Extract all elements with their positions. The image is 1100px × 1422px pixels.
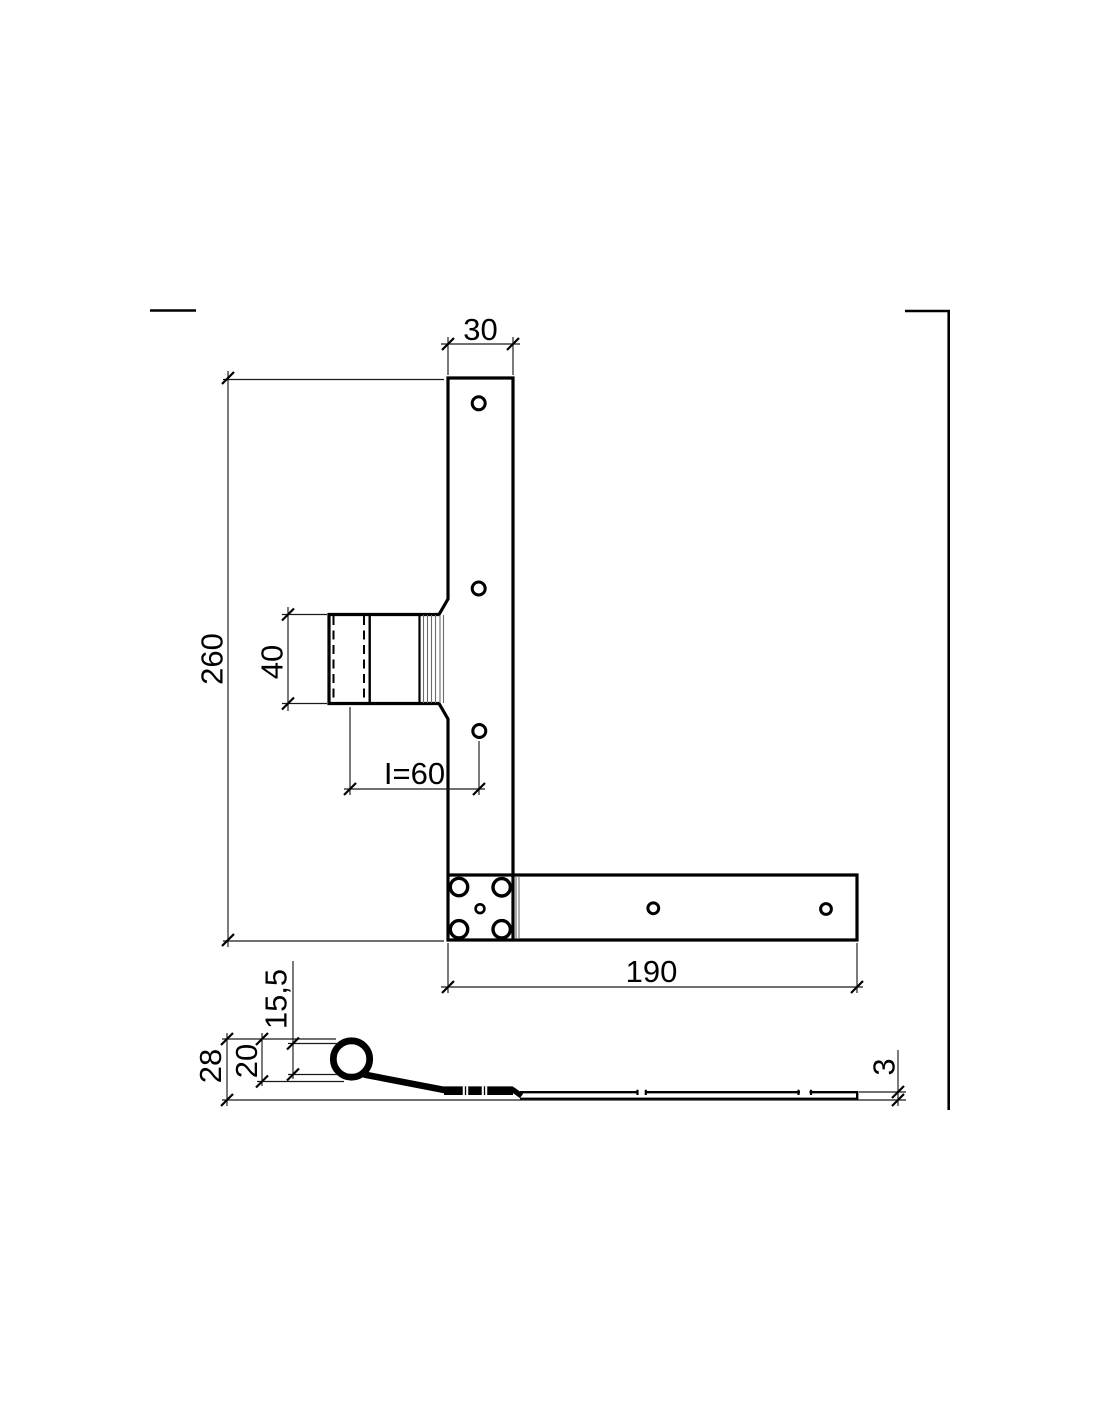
dim-label-190: 190 <box>626 954 678 989</box>
dimension-strap-width-30: 30 <box>441 312 520 375</box>
screw-hole-middle <box>472 582 485 595</box>
strap-hole-middle <box>648 903 659 914</box>
hinge-technical-drawing: 30 260 40 I=60 190 <box>0 0 1100 1422</box>
dimension-knuckle-height-40: 40 <box>255 607 328 711</box>
corner-hole-bottom-left <box>450 921 467 938</box>
dimension-thickness-3: 3 <box>859 1050 906 1106</box>
corner-hole-bottom-right <box>493 921 510 938</box>
dim-label-260: 260 <box>195 633 230 685</box>
strap-hole-end <box>821 904 832 915</box>
dimension-overall-height-260: 260 <box>195 371 445 947</box>
corner-plate-junction-hatch <box>516 876 519 939</box>
knuckle-junction-hatch <box>424 615 444 703</box>
frame-segment-right <box>905 311 949 1110</box>
drawing-sheet: 30 260 40 I=60 190 <box>0 0 1100 1422</box>
dim-label-28: 28 <box>193 1049 228 1083</box>
strap-break-gap-2 <box>800 1091 810 1094</box>
dimension-pin-to-hole-I60: I=60 <box>344 707 485 795</box>
corner-hole-center <box>476 904 485 913</box>
eye-tangent-band <box>364 1075 447 1091</box>
dim-label-20: 20 <box>229 1044 264 1078</box>
dim-label-3: 3 <box>867 1058 902 1075</box>
hinge-outline <box>329 378 857 940</box>
hinge-eye-ring <box>333 1041 369 1077</box>
pin-bore-hidden-lines <box>334 616 365 701</box>
dim-label-15-5: 15,5 <box>259 969 294 1029</box>
dimensions: 30 260 40 I=60 190 <box>193 312 906 1106</box>
dimension-strap-length-190: 190 <box>441 943 863 993</box>
dim-label-30: 30 <box>463 312 497 347</box>
dimension-eye-inner-15-5: 15,5 <box>259 961 339 1081</box>
dim-label-40: 40 <box>255 645 290 679</box>
screw-hole-top <box>472 397 485 410</box>
dimension-eye-outer-20: 20 <box>229 1033 344 1088</box>
screw-hole-lower <box>473 725 486 738</box>
corner-hole-top-left <box>450 878 467 895</box>
dim-label-I60: I=60 <box>384 756 445 791</box>
strap-break-gap-1 <box>639 1091 646 1094</box>
front-view <box>329 378 857 940</box>
side-view <box>333 1041 857 1100</box>
corner-hole-top-right <box>493 879 510 896</box>
